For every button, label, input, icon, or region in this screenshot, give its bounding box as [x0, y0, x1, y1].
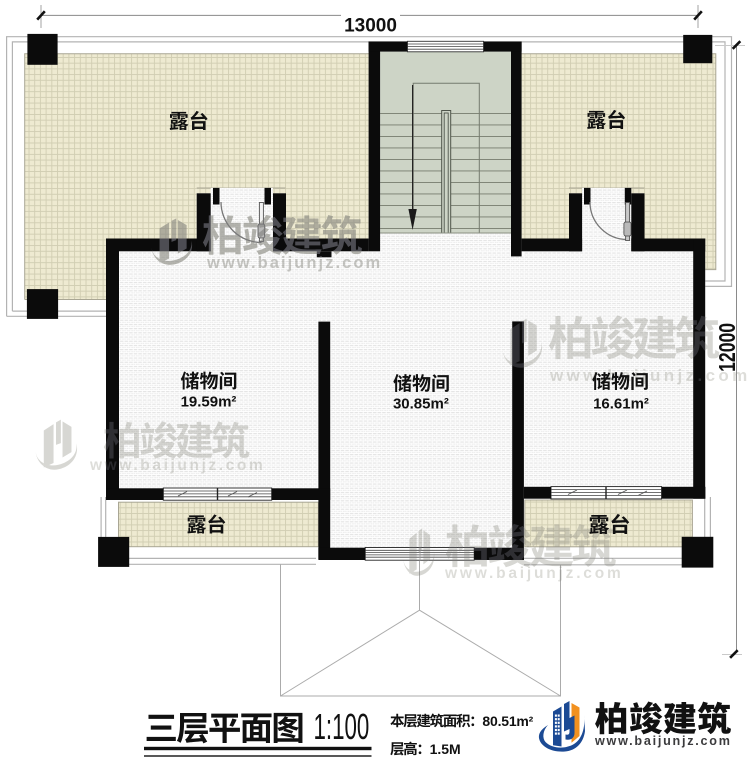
- svg-text:www.baijunjz.com: www.baijunjz.com: [594, 734, 732, 748]
- svg-text:16.61m²: 16.61m²: [593, 396, 649, 413]
- svg-text:80.51m²: 80.51m²: [482, 713, 533, 729]
- svg-text:30.85m²: 30.85m²: [393, 396, 449, 413]
- svg-text:www.baijunjz.com: www.baijunjz.com: [444, 565, 624, 582]
- svg-text:www.baijunjz.com: www.baijunjz.com: [89, 457, 265, 474]
- svg-text:www.baijunjz.com: www.baijunjz.com: [206, 254, 382, 272]
- svg-text:1:100: 1:100: [314, 708, 370, 748]
- svg-text:1.5M: 1.5M: [430, 741, 461, 757]
- svg-text:12000: 12000: [715, 323, 741, 372]
- svg-text:13000: 13000: [344, 16, 397, 37]
- svg-text:19.59m²: 19.59m²: [181, 394, 237, 411]
